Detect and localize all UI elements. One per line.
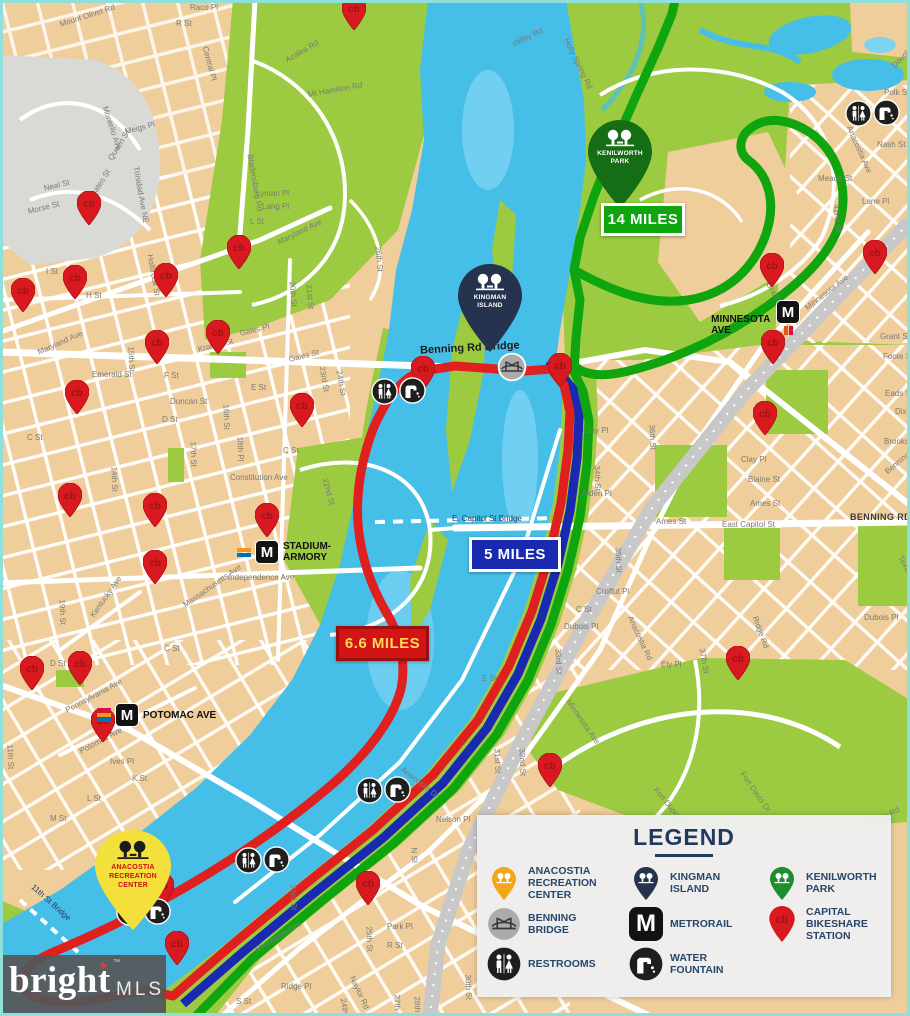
svg-text:cb: cb: [171, 939, 183, 950]
capital-bikeshare-pin: cb: [63, 265, 87, 299]
water-fountain-icon: [873, 99, 900, 126]
mile-marker-red: 6.6 MILES: [336, 626, 429, 661]
capital-bikeshare-pin: cb: [77, 191, 101, 225]
capital-bikeshare-pin: cb: [753, 401, 777, 435]
capital-bikeshare-pin: cb: [165, 931, 189, 965]
svg-text:cb: cb: [151, 338, 163, 349]
legend-item-bikeshare-pin: cb CAPITAL BIKESHARE STATION: [765, 906, 887, 942]
metrorail-icon: M: [629, 907, 663, 941]
svg-text:cb: cb: [17, 286, 29, 297]
legend-item-kingman-pin: KINGMAN ISLAND: [629, 865, 765, 901]
mile-marker-green: 14 MILES: [601, 203, 685, 236]
legend-item-label: WATER FOUNTAIN: [670, 952, 762, 976]
svg-text:cb: cb: [732, 654, 744, 665]
svg-text:cb: cb: [869, 248, 881, 259]
kingman-pin: KINGMAN ISLAND: [458, 264, 522, 352]
metro-station-label: MINNESOTA AVE: [711, 314, 770, 336]
kingman-pin-icon: [629, 867, 663, 900]
capital-bikeshare-pin: cb: [227, 235, 251, 269]
svg-text:cb: cb: [149, 501, 161, 512]
water-fountain-icon: [629, 947, 663, 981]
capital-bikeshare-pin: cb: [342, 0, 366, 30]
metro-station-potomac-ave: M POTOMAC AVE: [97, 703, 216, 727]
metrorail-icon: M: [255, 540, 279, 564]
metro-station-minnesota-ave: M MINNESOTA AVE: [776, 300, 800, 335]
kenilworth-pin-icon: [765, 867, 799, 900]
svg-text:cb: cb: [417, 364, 429, 375]
svg-text:cb: cb: [776, 914, 789, 926]
capital-bikeshare-pin: cb: [143, 550, 167, 584]
bikeshare-pin-icon: cb: [765, 906, 799, 942]
svg-text:cb: cb: [233, 243, 245, 254]
metro-line-stripes: [97, 708, 111, 722]
metro-line-stripes: [237, 548, 251, 557]
capital-bikeshare-pin: cb: [58, 483, 82, 517]
svg-text:cb: cb: [64, 491, 76, 502]
legend-item-label: METRORAIL: [670, 918, 732, 930]
water-fountain-icon: [263, 846, 290, 873]
svg-text:cb: cb: [544, 761, 556, 772]
capital-bikeshare-pin: cb: [20, 656, 44, 690]
capital-bikeshare-pin: cb: [145, 330, 169, 364]
legend-item-metrorail: MMETRORAIL: [629, 906, 765, 942]
legend-item-label: RESTROOMS: [528, 958, 596, 970]
legend-item-label: KENILWORTH PARK: [806, 871, 887, 895]
metrorail-icon: M: [115, 703, 139, 727]
capital-bikeshare-pin: cb: [65, 380, 89, 414]
bike-route-map: Mount Olivet RdCentral PlRaco PlR StBlad…: [0, 0, 910, 1016]
brightmls-watermark: bright ✦ ™ MLS: [0, 955, 166, 1016]
capital-bikeshare-pin: cb: [538, 753, 562, 787]
water-fountain-icon: [399, 377, 426, 404]
landmark-pin-label: KINGMAN ISLAND: [458, 294, 522, 310]
capital-bikeshare-pin: cb: [760, 253, 784, 287]
legend-item-benning-bridge: BENNING BRIDGE: [487, 906, 629, 942]
mile-marker-blue: 5 MILES: [469, 537, 561, 572]
svg-text:cb: cb: [759, 409, 771, 420]
brightmls-star-icon: ✦: [97, 957, 110, 975]
svg-text:cb: cb: [26, 664, 38, 675]
svg-text:cb: cb: [149, 558, 161, 569]
svg-text:cb: cb: [212, 328, 224, 339]
legend-items: ANACOSTIA RECREATION CENTER KINGMAN ISLA…: [477, 863, 891, 981]
restrooms-icon: [487, 947, 521, 981]
svg-text:cb: cb: [261, 511, 273, 522]
svg-text:cb: cb: [554, 361, 566, 372]
metro-line-stripes: [784, 326, 793, 335]
brightmls-brand-text: bright: [9, 959, 111, 1002]
restrooms-icon: [845, 100, 872, 127]
kenilworth-pin: KENILWORTH PARK: [588, 120, 652, 208]
svg-text:cb: cb: [296, 401, 308, 412]
legend-title-underline: [655, 854, 713, 857]
water-fountain-icon: [384, 776, 411, 803]
capital-bikeshare-pin: cb: [356, 871, 380, 905]
capital-bikeshare-pin: cb: [206, 320, 230, 354]
recreation-pin: ANACOSTIA RECREATION CENTER: [95, 830, 171, 930]
legend-item-label: KINGMAN ISLAND: [670, 871, 762, 895]
svg-text:cb: cb: [362, 879, 374, 890]
legend-item-kenilworth-pin: KENILWORTH PARK: [765, 865, 887, 901]
landmark-pin-label: KENILWORTH PARK: [588, 150, 652, 166]
svg-text:cb: cb: [766, 261, 778, 272]
svg-text:cb: cb: [83, 199, 95, 210]
legend: LEGEND ANACOSTIA RECREATION CENTER KINGM…: [477, 815, 891, 997]
metro-station-label: STADIUM- ARMORY: [283, 541, 331, 563]
legend-item-label: BENNING BRIDGE: [528, 912, 620, 936]
legend-item-restrooms: RESTROOMS: [487, 947, 629, 981]
capital-bikeshare-pin: cb: [548, 353, 572, 387]
capital-bikeshare-pin: cb: [154, 263, 178, 297]
capital-bikeshare-pin: cb: [255, 503, 279, 537]
restrooms-icon: [371, 378, 398, 405]
legend-item-recreation-pin: ANACOSTIA RECREATION CENTER: [487, 865, 629, 901]
capital-bikeshare-pin: cb: [726, 646, 750, 680]
capital-bikeshare-pin: cb: [863, 240, 887, 274]
restrooms-icon: [356, 777, 383, 804]
svg-text:cb: cb: [71, 388, 83, 399]
legend-item-label: CAPITAL BIKESHARE STATION: [806, 906, 887, 942]
bridge-icon: [497, 352, 527, 382]
svg-text:cb: cb: [69, 273, 81, 284]
brightmls-mls-text: MLS: [116, 979, 164, 1001]
benning-bridge-icon: [487, 907, 521, 941]
svg-text:cb: cb: [767, 338, 779, 349]
capital-bikeshare-pin: cb: [68, 651, 92, 685]
legend-item-label: ANACOSTIA RECREATION CENTER: [528, 865, 620, 901]
capital-bikeshare-pin: cb: [143, 493, 167, 527]
landmark-pin-label: ANACOSTIA RECREATION CENTER: [95, 864, 171, 890]
capital-bikeshare-pin: cb: [11, 278, 35, 312]
recreation-pin-icon: [487, 867, 521, 900]
svg-text:cb: cb: [348, 4, 360, 15]
metro-station-stadium-armory: M STADIUM- ARMORY: [237, 540, 331, 564]
capital-bikeshare-pin: cb: [290, 393, 314, 427]
trademark-symbol: ™: [113, 959, 120, 966]
metrorail-icon: M: [776, 300, 800, 324]
metro-station-label: POTOMAC AVE: [143, 710, 216, 721]
svg-text:cb: cb: [74, 659, 86, 670]
svg-text:cb: cb: [160, 271, 172, 282]
legend-item-water-fountain: WATER FOUNTAIN: [629, 947, 765, 981]
legend-title: LEGEND: [477, 824, 891, 851]
restrooms-icon: [235, 847, 262, 874]
